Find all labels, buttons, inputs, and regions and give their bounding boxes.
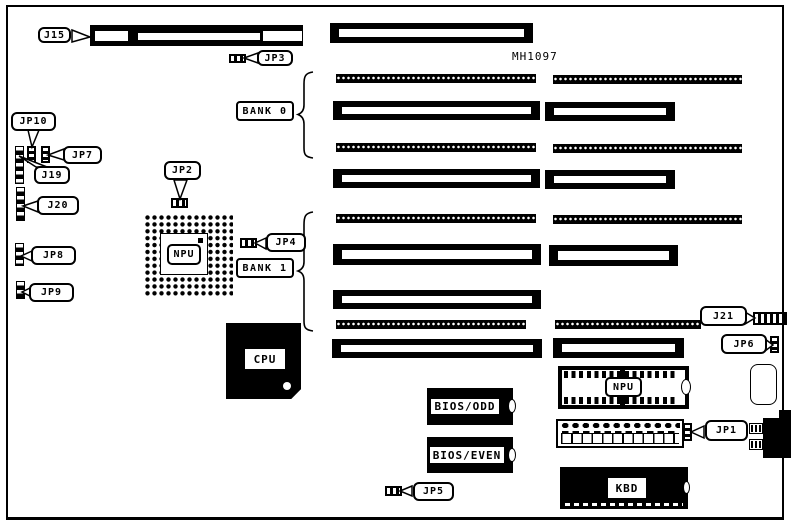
jumper-jp2 bbox=[171, 198, 188, 208]
model-number: MH1097 bbox=[512, 50, 558, 63]
jumper-jp7 bbox=[41, 146, 50, 163]
npu-dip-socket: NPU bbox=[558, 366, 689, 409]
simm-socket bbox=[333, 290, 541, 309]
simm-pin-row bbox=[336, 320, 526, 329]
header-jp8 bbox=[15, 243, 24, 266]
chip-notch bbox=[508, 448, 516, 462]
chip-notch bbox=[508, 399, 516, 413]
pin1-dot bbox=[283, 382, 291, 390]
simm-pin-row bbox=[553, 75, 742, 84]
simm-pin-row bbox=[336, 214, 536, 223]
callout-jp4: JP4 bbox=[266, 233, 306, 252]
simm-socket bbox=[333, 244, 541, 265]
bios-odd-chip: BIOS/ODD bbox=[427, 388, 513, 425]
din-connector-outline bbox=[750, 364, 777, 405]
jumper-jp5 bbox=[385, 486, 402, 496]
header-jp9 bbox=[16, 281, 25, 299]
simm-pin-row bbox=[555, 320, 701, 329]
pin-teeth bbox=[751, 425, 761, 432]
callout-jp5: JP5 bbox=[413, 482, 454, 501]
motherboard-diagram: MH1097 NPU C bbox=[0, 0, 791, 527]
jumper-jp1 bbox=[683, 423, 692, 441]
simm-pin-row bbox=[336, 74, 536, 83]
simm-socket bbox=[545, 170, 675, 189]
kbd-chip: KBD bbox=[560, 467, 688, 509]
power-pins-square bbox=[561, 433, 679, 444]
jumper-jp10 bbox=[27, 146, 36, 163]
kbd-pin-row bbox=[565, 503, 683, 506]
callout-jp7: JP7 bbox=[63, 146, 102, 164]
jumper-jp3 bbox=[229, 54, 246, 63]
socket-notch bbox=[681, 379, 691, 395]
pin1-marker bbox=[198, 238, 203, 243]
callout-jp3: JP3 bbox=[257, 50, 293, 66]
callout-j21: J21 bbox=[700, 306, 747, 326]
callout-j19: J19 bbox=[34, 166, 70, 184]
simm-socket bbox=[549, 245, 678, 266]
simm-socket bbox=[332, 339, 542, 358]
simm-socket bbox=[333, 101, 540, 120]
npu-dip-label: NPU bbox=[605, 377, 642, 397]
edge-connector-j15 bbox=[90, 25, 303, 46]
kbd-port-body bbox=[763, 418, 791, 458]
simm-socket bbox=[545, 102, 675, 121]
expansion-slot bbox=[330, 23, 533, 43]
chip-notch bbox=[683, 481, 690, 494]
simm-socket bbox=[333, 169, 540, 188]
connector-keyway bbox=[339, 29, 524, 37]
power-connector bbox=[556, 419, 684, 448]
connector-keyway bbox=[95, 31, 128, 41]
bios-even-chip: BIOS/EVEN bbox=[427, 437, 513, 473]
simm-pin-row bbox=[553, 215, 742, 224]
connector-keyway bbox=[263, 31, 302, 41]
socket-tab bbox=[620, 397, 625, 405]
callout-jp6: JP6 bbox=[721, 334, 767, 354]
npu-socket-label: NPU bbox=[167, 244, 201, 265]
kbd-port-pin-block bbox=[749, 439, 763, 450]
kbd-label: KBD bbox=[607, 477, 647, 499]
callout-jp10: JP10 bbox=[11, 112, 56, 131]
header-j20 bbox=[16, 187, 25, 221]
callout-jp2: JP2 bbox=[164, 161, 201, 180]
simm-socket bbox=[553, 338, 684, 358]
bios-odd-label: BIOS/ODD bbox=[430, 398, 500, 415]
callout-bank1: BANK 1 bbox=[236, 258, 294, 278]
callout-jp9: JP9 bbox=[29, 283, 74, 302]
connector-keyway bbox=[138, 33, 260, 40]
callout-j15: J15 bbox=[38, 27, 71, 43]
kbd-port-pin-block bbox=[749, 423, 763, 434]
bios-even-label: BIOS/EVEN bbox=[429, 446, 505, 464]
jumper-jp4 bbox=[240, 238, 257, 248]
header-j19 bbox=[15, 146, 24, 184]
callout-jp8: JP8 bbox=[31, 246, 76, 265]
callout-j20: J20 bbox=[37, 196, 79, 215]
npu-pga-socket: NPU bbox=[144, 214, 233, 297]
pin-teeth bbox=[751, 441, 761, 448]
jumper-jp6 bbox=[770, 336, 779, 353]
cpu-chip: CPU bbox=[226, 323, 301, 399]
cpu-label: CPU bbox=[245, 349, 285, 369]
jumper-j21 bbox=[753, 312, 787, 325]
simm-pin-row bbox=[553, 144, 742, 153]
power-pins-oval bbox=[560, 421, 680, 430]
callout-jp1: JP1 bbox=[705, 420, 748, 441]
simm-pin-row bbox=[336, 143, 536, 152]
callout-bank0: BANK 0 bbox=[236, 101, 294, 121]
